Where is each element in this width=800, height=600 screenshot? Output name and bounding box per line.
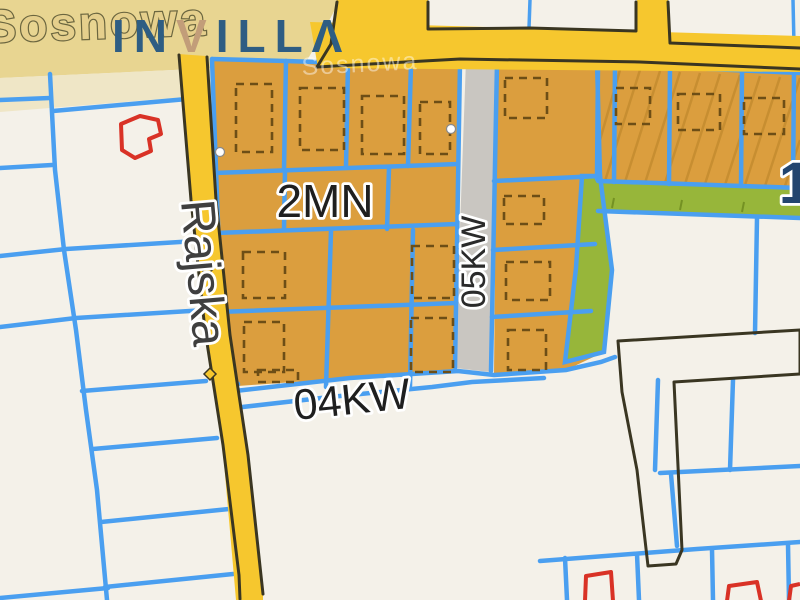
parcel-line bbox=[540, 542, 800, 561]
parcel-line bbox=[105, 574, 233, 587]
map-canvas[interactable]: Sosnowa Sosnowa Rajska 2MN 04KW 05KW 1 I… bbox=[0, 0, 800, 600]
watermark-letter-a: Λ bbox=[312, 10, 352, 62]
parcel-line bbox=[755, 218, 757, 333]
parcel-line bbox=[101, 509, 229, 522]
red-outline-shape bbox=[789, 584, 800, 600]
parcel-line bbox=[741, 70, 742, 186]
parcel-line bbox=[637, 554, 639, 600]
parcel-line bbox=[408, 64, 411, 166]
zone-label-2mn: 2MN bbox=[276, 175, 373, 227]
watermark-letter-v: V bbox=[176, 10, 216, 62]
parcel-line bbox=[669, 68, 670, 184]
parcel-line bbox=[0, 588, 108, 598]
invilla-watermark: INVILLΛ bbox=[112, 10, 351, 62]
parcel-line bbox=[0, 98, 50, 100]
red-outline-shape bbox=[121, 116, 161, 158]
parcel-line bbox=[0, 310, 206, 327]
red-outline-shape bbox=[727, 582, 761, 600]
parcel-line bbox=[712, 549, 713, 600]
watermark-part: IN bbox=[112, 10, 176, 62]
parcel-line bbox=[655, 380, 658, 470]
road-stub-north-2 bbox=[636, 0, 669, 46]
parcel-line bbox=[82, 381, 206, 391]
survey-marker bbox=[447, 125, 456, 134]
survey-marker bbox=[216, 148, 225, 157]
parcel-line bbox=[529, 0, 530, 28]
parcel-line bbox=[597, 64, 598, 179]
watermark-part: ILL bbox=[216, 10, 312, 62]
road-southeast bbox=[618, 330, 800, 566]
parcel-line bbox=[0, 241, 196, 256]
parcel-line bbox=[0, 165, 52, 168]
parcel-line bbox=[50, 74, 107, 600]
parcel-line bbox=[284, 61, 286, 169]
parcel-line bbox=[565, 558, 567, 600]
road-label-05kw: 05KW bbox=[455, 216, 493, 309]
parcel-line bbox=[671, 474, 677, 546]
parcel-line bbox=[93, 438, 217, 449]
parcel-line bbox=[730, 380, 733, 470]
map-viewport: Sosnowa Sosnowa Rajska 2MN 04KW 05KW 1 I… bbox=[0, 0, 800, 600]
zone-label-right-partial: 1 bbox=[779, 151, 800, 216]
red-outline-shape bbox=[585, 572, 613, 600]
parcel-line bbox=[387, 168, 389, 229]
